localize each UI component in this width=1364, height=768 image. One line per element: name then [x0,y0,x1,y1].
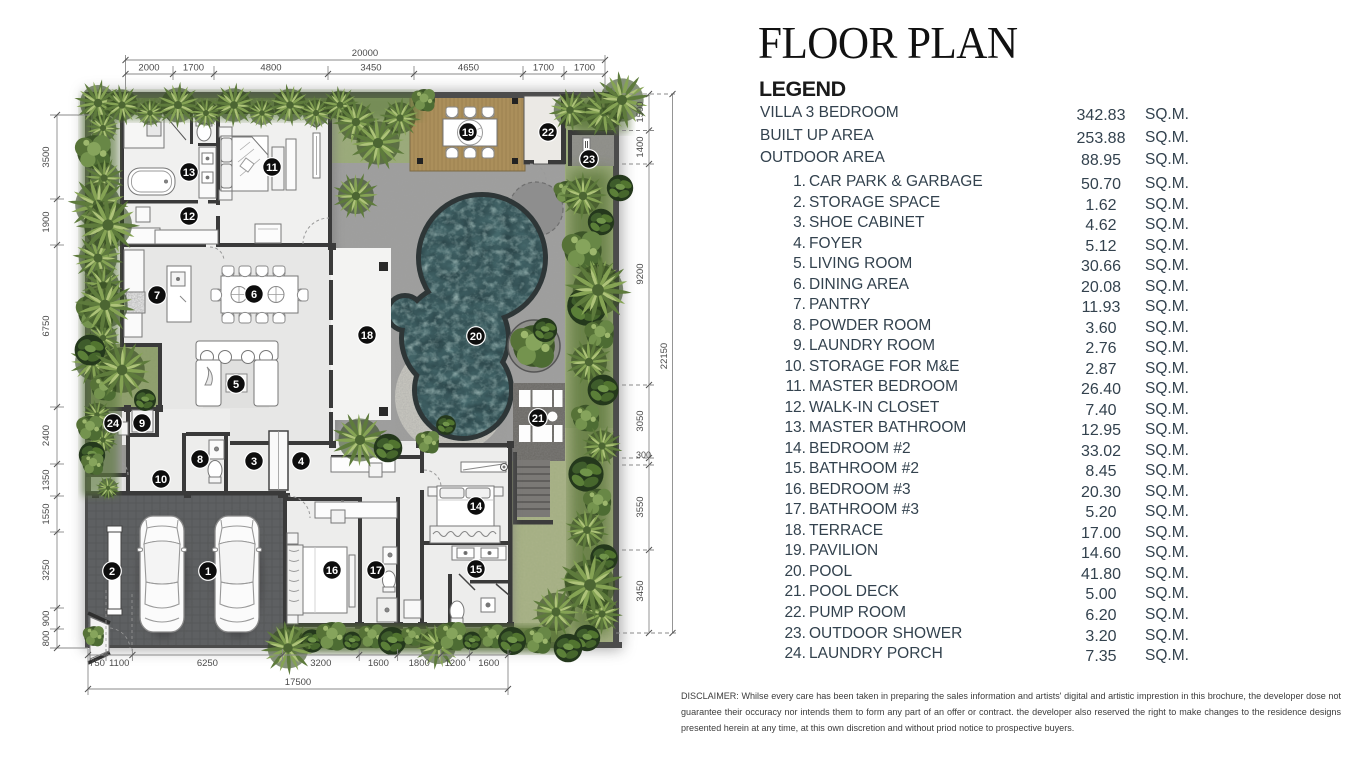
svg-text:5: 5 [233,379,239,391]
svg-text:11: 11 [266,162,278,174]
svg-text:1600: 1600 [368,658,389,669]
svg-text:1200: 1200 [445,658,466,669]
svg-text:3500: 3500 [41,146,52,167]
svg-text:16: 16 [326,565,338,577]
svg-text:1700: 1700 [183,63,204,74]
svg-text:6250: 6250 [197,658,218,669]
svg-text:22150: 22150 [659,343,670,369]
svg-text:14: 14 [470,501,483,513]
svg-text:9: 9 [139,418,145,430]
svg-text:20000: 20000 [352,48,378,59]
svg-text:1800: 1800 [409,658,430,669]
svg-text:3450: 3450 [360,63,381,74]
svg-text:6750: 6750 [41,315,52,336]
svg-text:10: 10 [155,474,167,486]
svg-text:24: 24 [107,418,120,430]
svg-text:6: 6 [251,289,257,301]
svg-text:2000: 2000 [138,63,159,74]
svg-text:7: 7 [154,290,160,302]
svg-text:3050: 3050 [635,410,646,431]
svg-text:750: 750 [89,658,105,669]
svg-text:1700: 1700 [574,63,595,74]
svg-text:17500: 17500 [285,677,311,688]
svg-text:800: 800 [41,631,52,647]
svg-text:19: 19 [462,127,474,139]
svg-text:8: 8 [197,454,203,466]
svg-text:13: 13 [183,167,195,179]
svg-text:3200: 3200 [310,658,331,669]
svg-text:22: 22 [542,127,554,139]
svg-text:20: 20 [470,331,482,343]
svg-text:15: 15 [470,564,482,576]
svg-text:1600: 1600 [478,658,499,669]
svg-text:2: 2 [109,566,115,578]
svg-text:3: 3 [251,456,257,468]
svg-text:1900: 1900 [41,211,52,232]
svg-text:900: 900 [41,611,52,627]
svg-text:1100: 1100 [109,658,129,669]
svg-text:18: 18 [361,330,373,342]
svg-text:4800: 4800 [260,63,281,74]
svg-text:300: 300 [636,450,651,460]
svg-text:3450: 3450 [635,580,646,601]
svg-text:1: 1 [205,566,211,578]
svg-text:2400: 2400 [41,425,52,446]
svg-text:1350: 1350 [41,469,52,490]
svg-text:1500: 1500 [635,101,646,122]
svg-text:1700: 1700 [533,63,554,74]
svg-text:17: 17 [370,565,382,577]
svg-text:12: 12 [183,211,195,223]
svg-text:4: 4 [298,456,305,468]
svg-text:3250: 3250 [41,559,52,580]
svg-text:3550: 3550 [635,496,646,517]
svg-text:1400: 1400 [635,136,646,157]
svg-text:1550: 1550 [41,503,52,524]
svg-text:23: 23 [583,154,595,166]
svg-text:4650: 4650 [458,63,479,74]
svg-text:21: 21 [532,413,544,425]
svg-text:9200: 9200 [635,263,646,284]
